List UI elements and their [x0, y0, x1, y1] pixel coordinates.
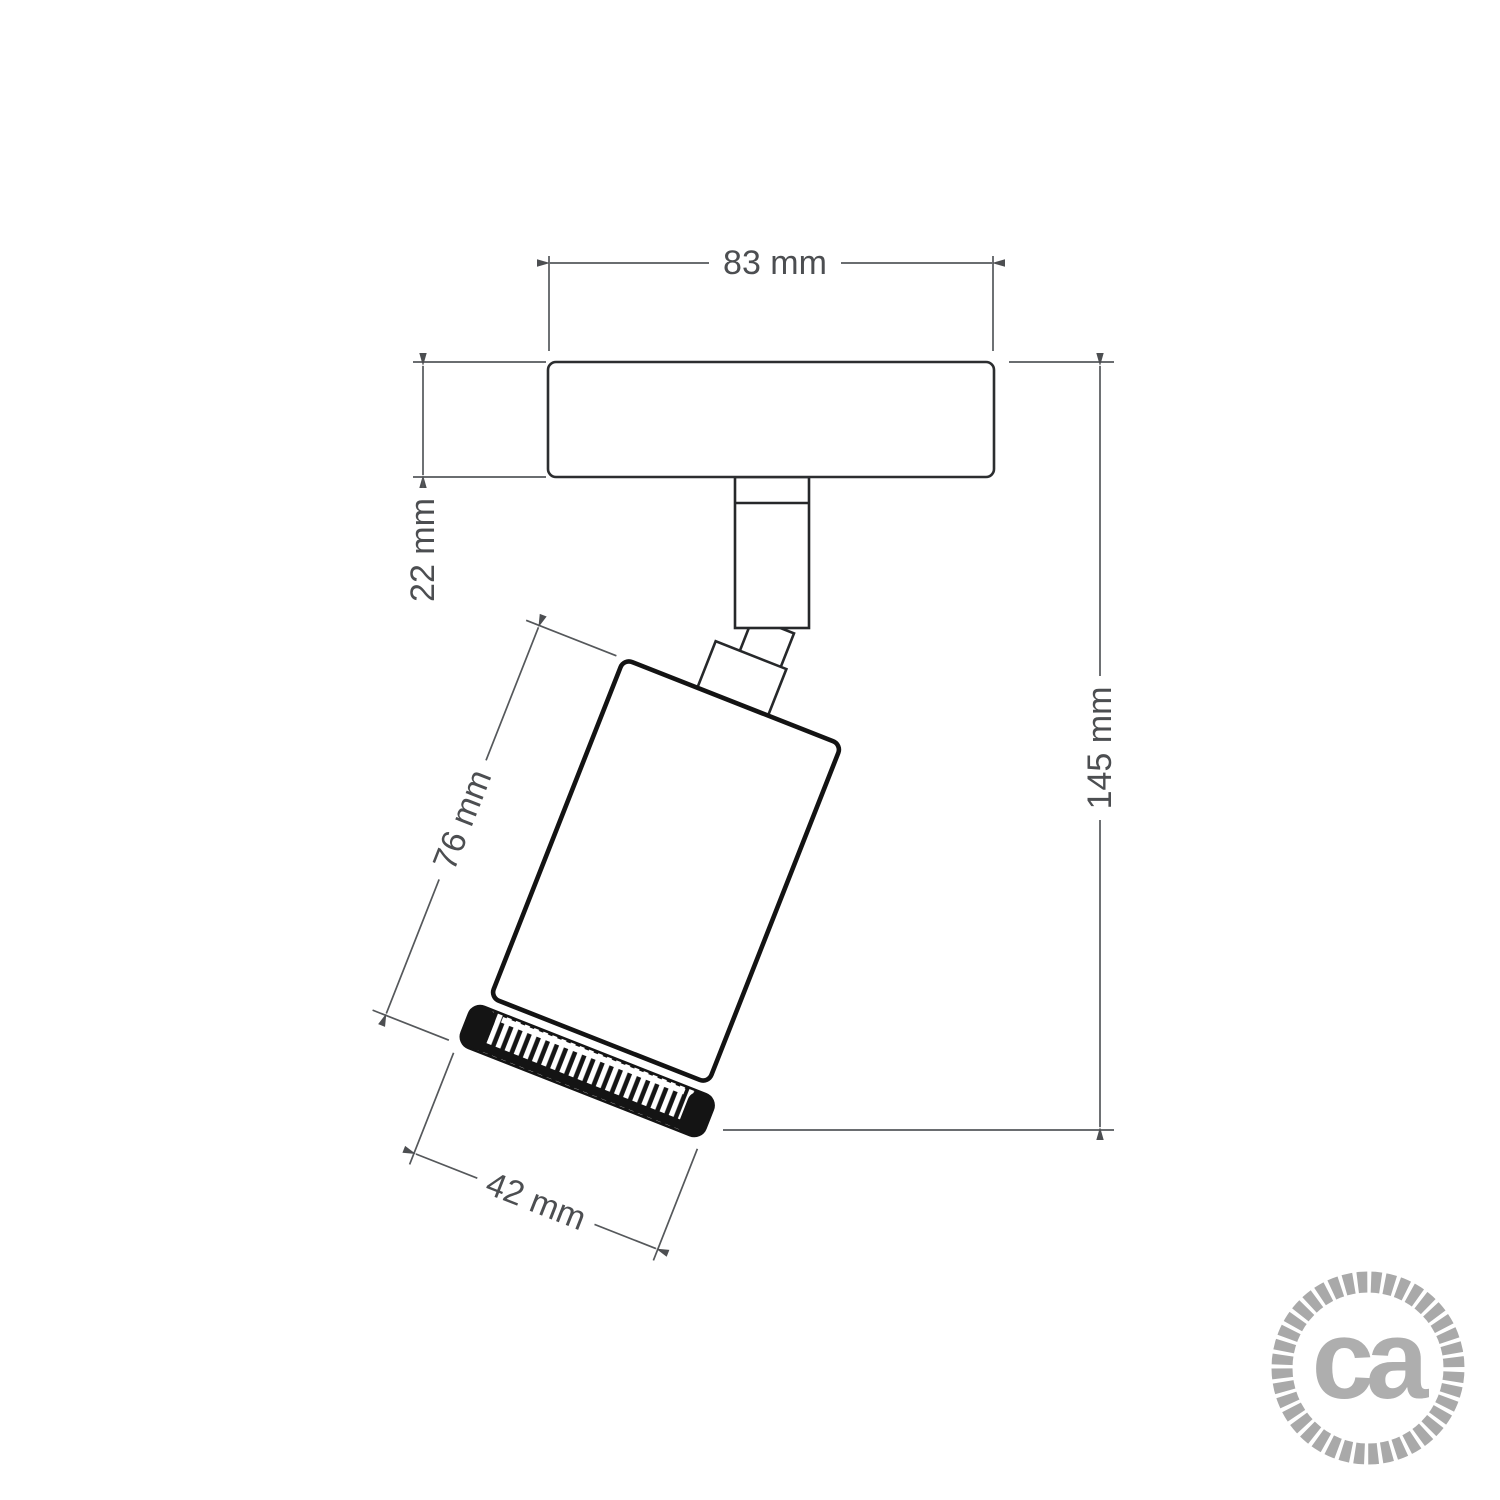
brand-logo: ca — [1282, 1282, 1454, 1454]
dim-83-label: 83 mm — [723, 244, 827, 282]
drawing-page: 76 mm 42 mm 83 mm — [0, 0, 1500, 1500]
dim-22-label: 22 mm — [404, 498, 442, 602]
dim-42-extension-right — [653, 1149, 697, 1261]
dim-76-extension-bottom — [373, 1010, 449, 1040]
ceiling-plate — [548, 362, 994, 477]
dimension-plate-width: 83 mm — [549, 243, 993, 351]
lamp-assembly: 76 mm 42 mm — [316, 538, 886, 1268]
dim-76-extension-top — [526, 620, 616, 656]
mounting-stem — [735, 477, 809, 628]
dimension-plate-thickness: 22 mm — [403, 362, 546, 612]
logo-text: ca — [1312, 1297, 1429, 1422]
technical-drawing-canvas: 76 mm 42 mm 83 mm — [0, 0, 1500, 1500]
dim-42-extension-left — [410, 1053, 454, 1165]
dim-145-label: 145 mm — [1081, 687, 1119, 810]
dim-42-label: 42 mm — [481, 1165, 592, 1238]
lamp-body — [490, 659, 841, 1083]
dim-76-label: 76 mm — [426, 765, 499, 876]
